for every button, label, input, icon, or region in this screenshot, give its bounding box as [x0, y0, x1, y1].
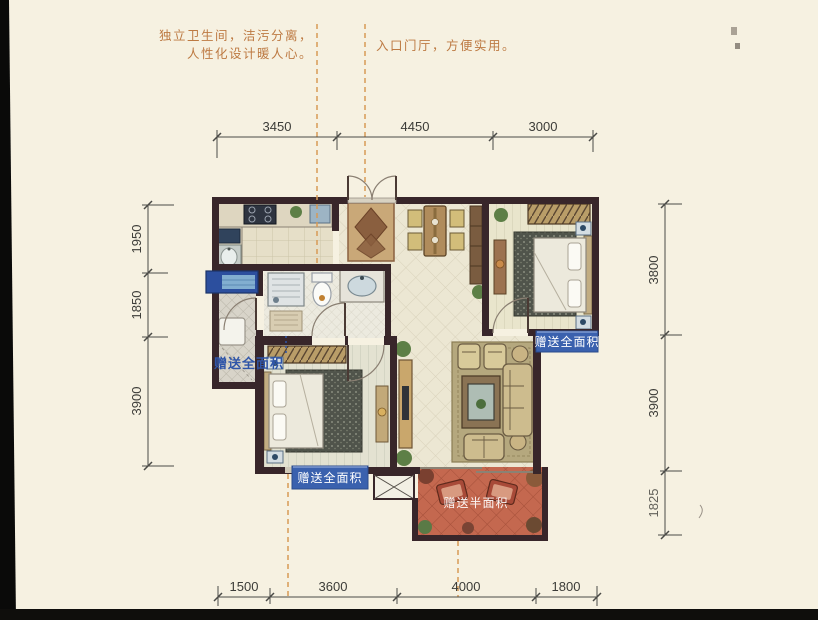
gift-label-bottom: 赠送全面积 — [292, 466, 368, 489]
side-table — [512, 346, 528, 362]
dim-top-2: 4450 — [401, 119, 430, 134]
dim-bottom-3: 4000 — [452, 579, 481, 594]
gift-label-left-text: 赠送全面积 — [214, 356, 284, 371]
dim-bottom-2: 3600 — [319, 579, 348, 594]
bedroom1-wardrobe — [528, 204, 590, 224]
shrub-icon — [418, 520, 432, 534]
shrub-icon — [526, 517, 542, 533]
plant-icon — [395, 341, 411, 357]
note-left-line2: 人性化设计暖人心。 — [187, 46, 313, 61]
entry-double-door — [348, 176, 396, 203]
toilet-icon — [312, 273, 332, 306]
gift-label-right-text: 赠送全面积 — [534, 334, 599, 349]
note-right: 入口门厅，方便实用。 — [376, 38, 516, 53]
dining-chair — [408, 210, 422, 227]
bath-mat — [270, 311, 302, 331]
scan-speck — [731, 27, 737, 35]
shower-icon — [268, 273, 304, 306]
tv-icon — [402, 386, 409, 420]
shrub-icon — [418, 468, 434, 484]
bedroom2-bed — [264, 372, 323, 450]
gift-label-right: 赠送全面积 — [534, 331, 599, 352]
shrub-icon — [462, 522, 474, 534]
dim-top-3: 3000 — [529, 119, 558, 134]
stove-icon — [244, 205, 276, 224]
dim-left-2: 1850 — [129, 291, 144, 320]
washer-icon — [219, 318, 245, 345]
kitchen-plant-icon — [290, 206, 302, 218]
dining-chair — [450, 233, 464, 250]
dim-right-1: 3800 — [646, 256, 661, 285]
annotations: 独立卫生间，洁污分离， 人性化设计暖人心。 入口门厅，方便实用。 — [159, 28, 516, 61]
vanity-sink-icon — [340, 270, 384, 302]
bedroom1-bed — [534, 236, 592, 314]
kitchen-appliance — [310, 205, 330, 223]
scan-edge-bottom — [0, 609, 818, 620]
note-left-line1: 独立卫生间，洁污分离， — [159, 28, 313, 43]
kitchen-hob — [218, 229, 240, 243]
dining-chair — [408, 233, 422, 250]
coffee-table — [462, 376, 500, 428]
bay-window-blue — [206, 271, 258, 293]
plant-icon — [494, 208, 508, 222]
scan-speck — [735, 43, 740, 49]
dim-left-3: 3900 — [129, 387, 144, 416]
dim-right-3: 1825 — [646, 489, 661, 518]
dim-bottom-4: 1800 — [552, 579, 581, 594]
floorplan-page: 赠送全面积 赠送全面积 赠送全面积 赠送半面积 独立卫生间，洁污分离， 人性化设… — [0, 0, 818, 620]
gift-label-terrace-text: 赠送半面积 — [443, 495, 508, 510]
dim-right-2: 3900 — [646, 389, 661, 418]
dim-bottom-1: 1500 — [230, 579, 259, 594]
flue-shaft — [374, 475, 414, 499]
pencil-mark — [699, 505, 702, 518]
dining-chair — [450, 210, 464, 227]
floor-plan-svg: 赠送全面积 赠送全面积 赠送全面积 赠送半面积 独立卫生间，洁污分离， 人性化设… — [0, 0, 818, 620]
scan-edge-left — [0, 0, 16, 620]
dim-top-1: 3450 — [263, 119, 292, 134]
entry-rug — [348, 203, 394, 261]
plant-icon — [396, 450, 412, 466]
dining-cabinet — [470, 206, 482, 284]
gift-label-bottom-text: 赠送全面积 — [297, 470, 362, 485]
dim-left-1: 1950 — [129, 225, 144, 254]
